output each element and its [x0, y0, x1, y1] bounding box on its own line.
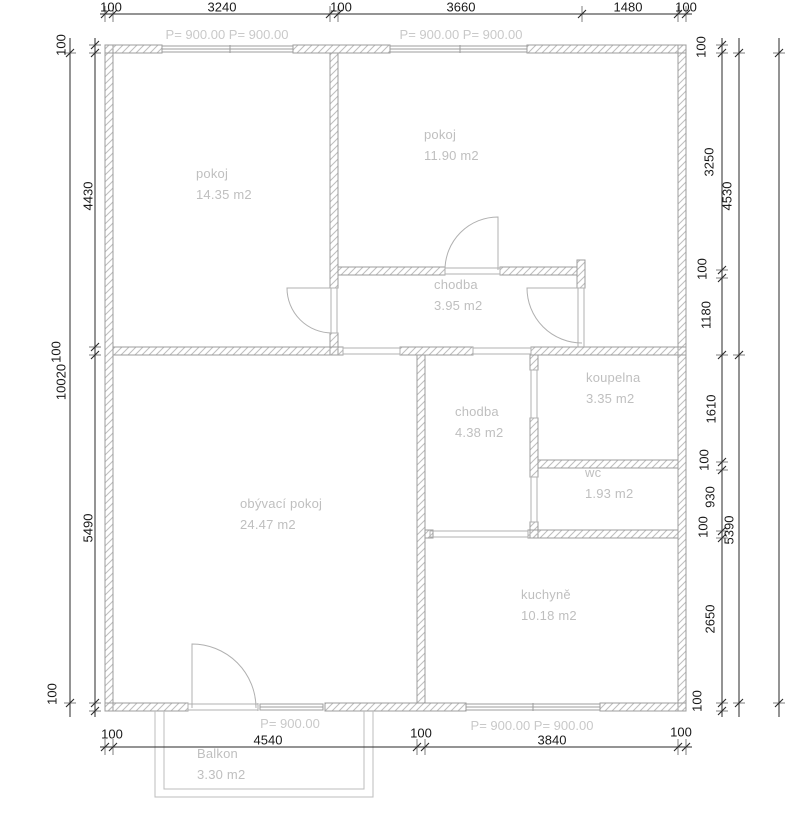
- wall-chodba-north: [500, 267, 577, 275]
- floor-plan: pokoj 14.35 m2 pokoj 11.90 m2 chodba 3.9…: [0, 0, 794, 816]
- door-swing-pokoj1: [287, 288, 332, 333]
- dim-bottom-3: 3840: [538, 733, 567, 748]
- wall-right: [678, 45, 686, 711]
- room-label-obyvaci: obývací pokoj 24.47 m2: [240, 493, 322, 535]
- dim-bottom-2: 100: [410, 726, 432, 741]
- dim-top-5: 100: [675, 0, 697, 15]
- room-name: pokoj: [196, 163, 252, 184]
- wall-chodba-north: [338, 267, 445, 275]
- room-name: Balkon: [197, 743, 245, 764]
- room-area: 3.35 m2: [586, 388, 640, 409]
- openings-layer: [188, 267, 585, 711]
- dim-right-7: 100: [696, 516, 711, 538]
- dim-left-3: 5490: [81, 514, 96, 543]
- room-label-chodba1: chodba 3.95 m2: [434, 274, 482, 316]
- room-area: 10.18 m2: [521, 605, 577, 626]
- dim-right-0: 100: [694, 36, 709, 58]
- dim-right-9: 100: [690, 690, 705, 712]
- plan-drawing: [0, 0, 794, 816]
- dim-right-2: 100: [695, 258, 710, 280]
- room-area: 3.30 m2: [197, 764, 245, 785]
- window-kitchen: [466, 703, 600, 711]
- doors-layer: [192, 217, 582, 708]
- dim-left-total: 10020: [54, 364, 69, 400]
- room-area: 24.47 m2: [240, 514, 322, 535]
- parapet-label-bottom-left: P= 900.00: [260, 716, 320, 731]
- wall-mid: [400, 347, 473, 355]
- parapet-label-top-left: P= 900.00 P= 900.00: [166, 27, 289, 42]
- room-area: 14.35 m2: [196, 184, 252, 205]
- wall-left: [105, 45, 113, 711]
- opening-chodba-passage: [473, 347, 531, 355]
- wall-bath-west: [530, 418, 538, 477]
- opening-koupelna-door: [530, 370, 538, 418]
- window-living: [260, 704, 323, 710]
- wall-living-east: [417, 355, 425, 703]
- wall-bottom-seg: [105, 703, 188, 711]
- parapet-label-bottom-right: P= 900.00 P= 900.00: [471, 718, 594, 733]
- wall-bottom-seg: [600, 703, 686, 711]
- dim-right-1: 3250: [702, 148, 717, 177]
- room-label-balkon: Balkon 3.30 m2: [197, 743, 245, 785]
- dim-top-2: 100: [330, 0, 352, 15]
- dim-bottom-1: 4540: [254, 733, 283, 748]
- room-name: pokoj: [424, 124, 479, 145]
- window-pokoj1: [162, 45, 293, 53]
- wall-top-seg: [293, 45, 390, 53]
- room-name: chodba: [434, 274, 482, 295]
- wall-bottom-seg: [325, 703, 466, 711]
- wall-mid: [113, 347, 343, 355]
- room-label-kuchyne: kuchyně 10.18 m2: [521, 584, 577, 626]
- dim-right-span-1: 5390: [722, 516, 737, 545]
- opening-entry-door: [577, 288, 585, 347]
- dim-left-2: 100: [49, 341, 64, 363]
- dim-right-3: 1180: [699, 301, 714, 329]
- wall-pokoj-divider: [330, 53, 338, 288]
- wall-top-seg: [105, 45, 162, 53]
- window-pokoj2: [390, 45, 527, 53]
- dim-left-4: 100: [45, 683, 60, 705]
- wall-kitchen-north: [528, 530, 678, 538]
- dim-right-8: 2650: [703, 605, 718, 634]
- opening-balcony-door: [188, 703, 258, 711]
- dim-right-span-0: 4530: [720, 182, 735, 211]
- room-name: wc: [585, 462, 633, 483]
- room-area: 3.95 m2: [434, 295, 482, 316]
- room-label-chodba2: chodba 4.38 m2: [455, 401, 503, 443]
- room-area: 1.93 m2: [585, 483, 633, 504]
- opening-living-passage: [343, 347, 400, 355]
- wall-mid: [531, 347, 686, 355]
- room-area: 11.90 m2: [424, 145, 479, 166]
- dim-top-0: 100: [100, 0, 122, 15]
- dim-right-4: 1610: [704, 395, 719, 424]
- room-name: koupelna: [586, 367, 640, 388]
- dim-top-1: 3240: [208, 0, 237, 15]
- dim-right-6: 930: [703, 486, 718, 508]
- dim-bottom-4: 100: [670, 725, 692, 740]
- door-swing-entry: [527, 288, 582, 343]
- room-area: 4.38 m2: [455, 422, 503, 443]
- opening-wc-door: [530, 477, 538, 522]
- room-name: obývací pokoj: [240, 493, 322, 514]
- dim-left-0: 100: [54, 34, 69, 56]
- wall-stub: [577, 260, 585, 288]
- room-label-wc: wc 1.93 m2: [585, 462, 633, 504]
- wall-bath-west: [530, 355, 538, 370]
- room-label-pokoj1: pokoj 14.35 m2: [196, 163, 252, 205]
- room-name: chodba: [455, 401, 503, 422]
- opening-kitchen-passage: [430, 530, 528, 538]
- dim-top-4: 1480: [614, 0, 643, 15]
- door-swing-pokoj2: [445, 217, 498, 270]
- wall-top-seg: [527, 45, 686, 53]
- dim-left-1: 4430: [81, 182, 96, 211]
- room-name: kuchyně: [521, 584, 577, 605]
- door-swing-balcony: [192, 644, 256, 708]
- dim-top-3: 3660: [447, 0, 476, 15]
- dim-bottom-0: 100: [101, 727, 123, 742]
- dim-right-5: 100: [697, 449, 712, 471]
- room-label-koupelna: koupelna 3.35 m2: [586, 367, 640, 409]
- room-label-pokoj2: pokoj 11.90 m2: [424, 124, 479, 166]
- opening-pokoj1-door: [330, 288, 338, 333]
- parapet-label-top-right: P= 900.00 P= 900.00: [400, 27, 523, 42]
